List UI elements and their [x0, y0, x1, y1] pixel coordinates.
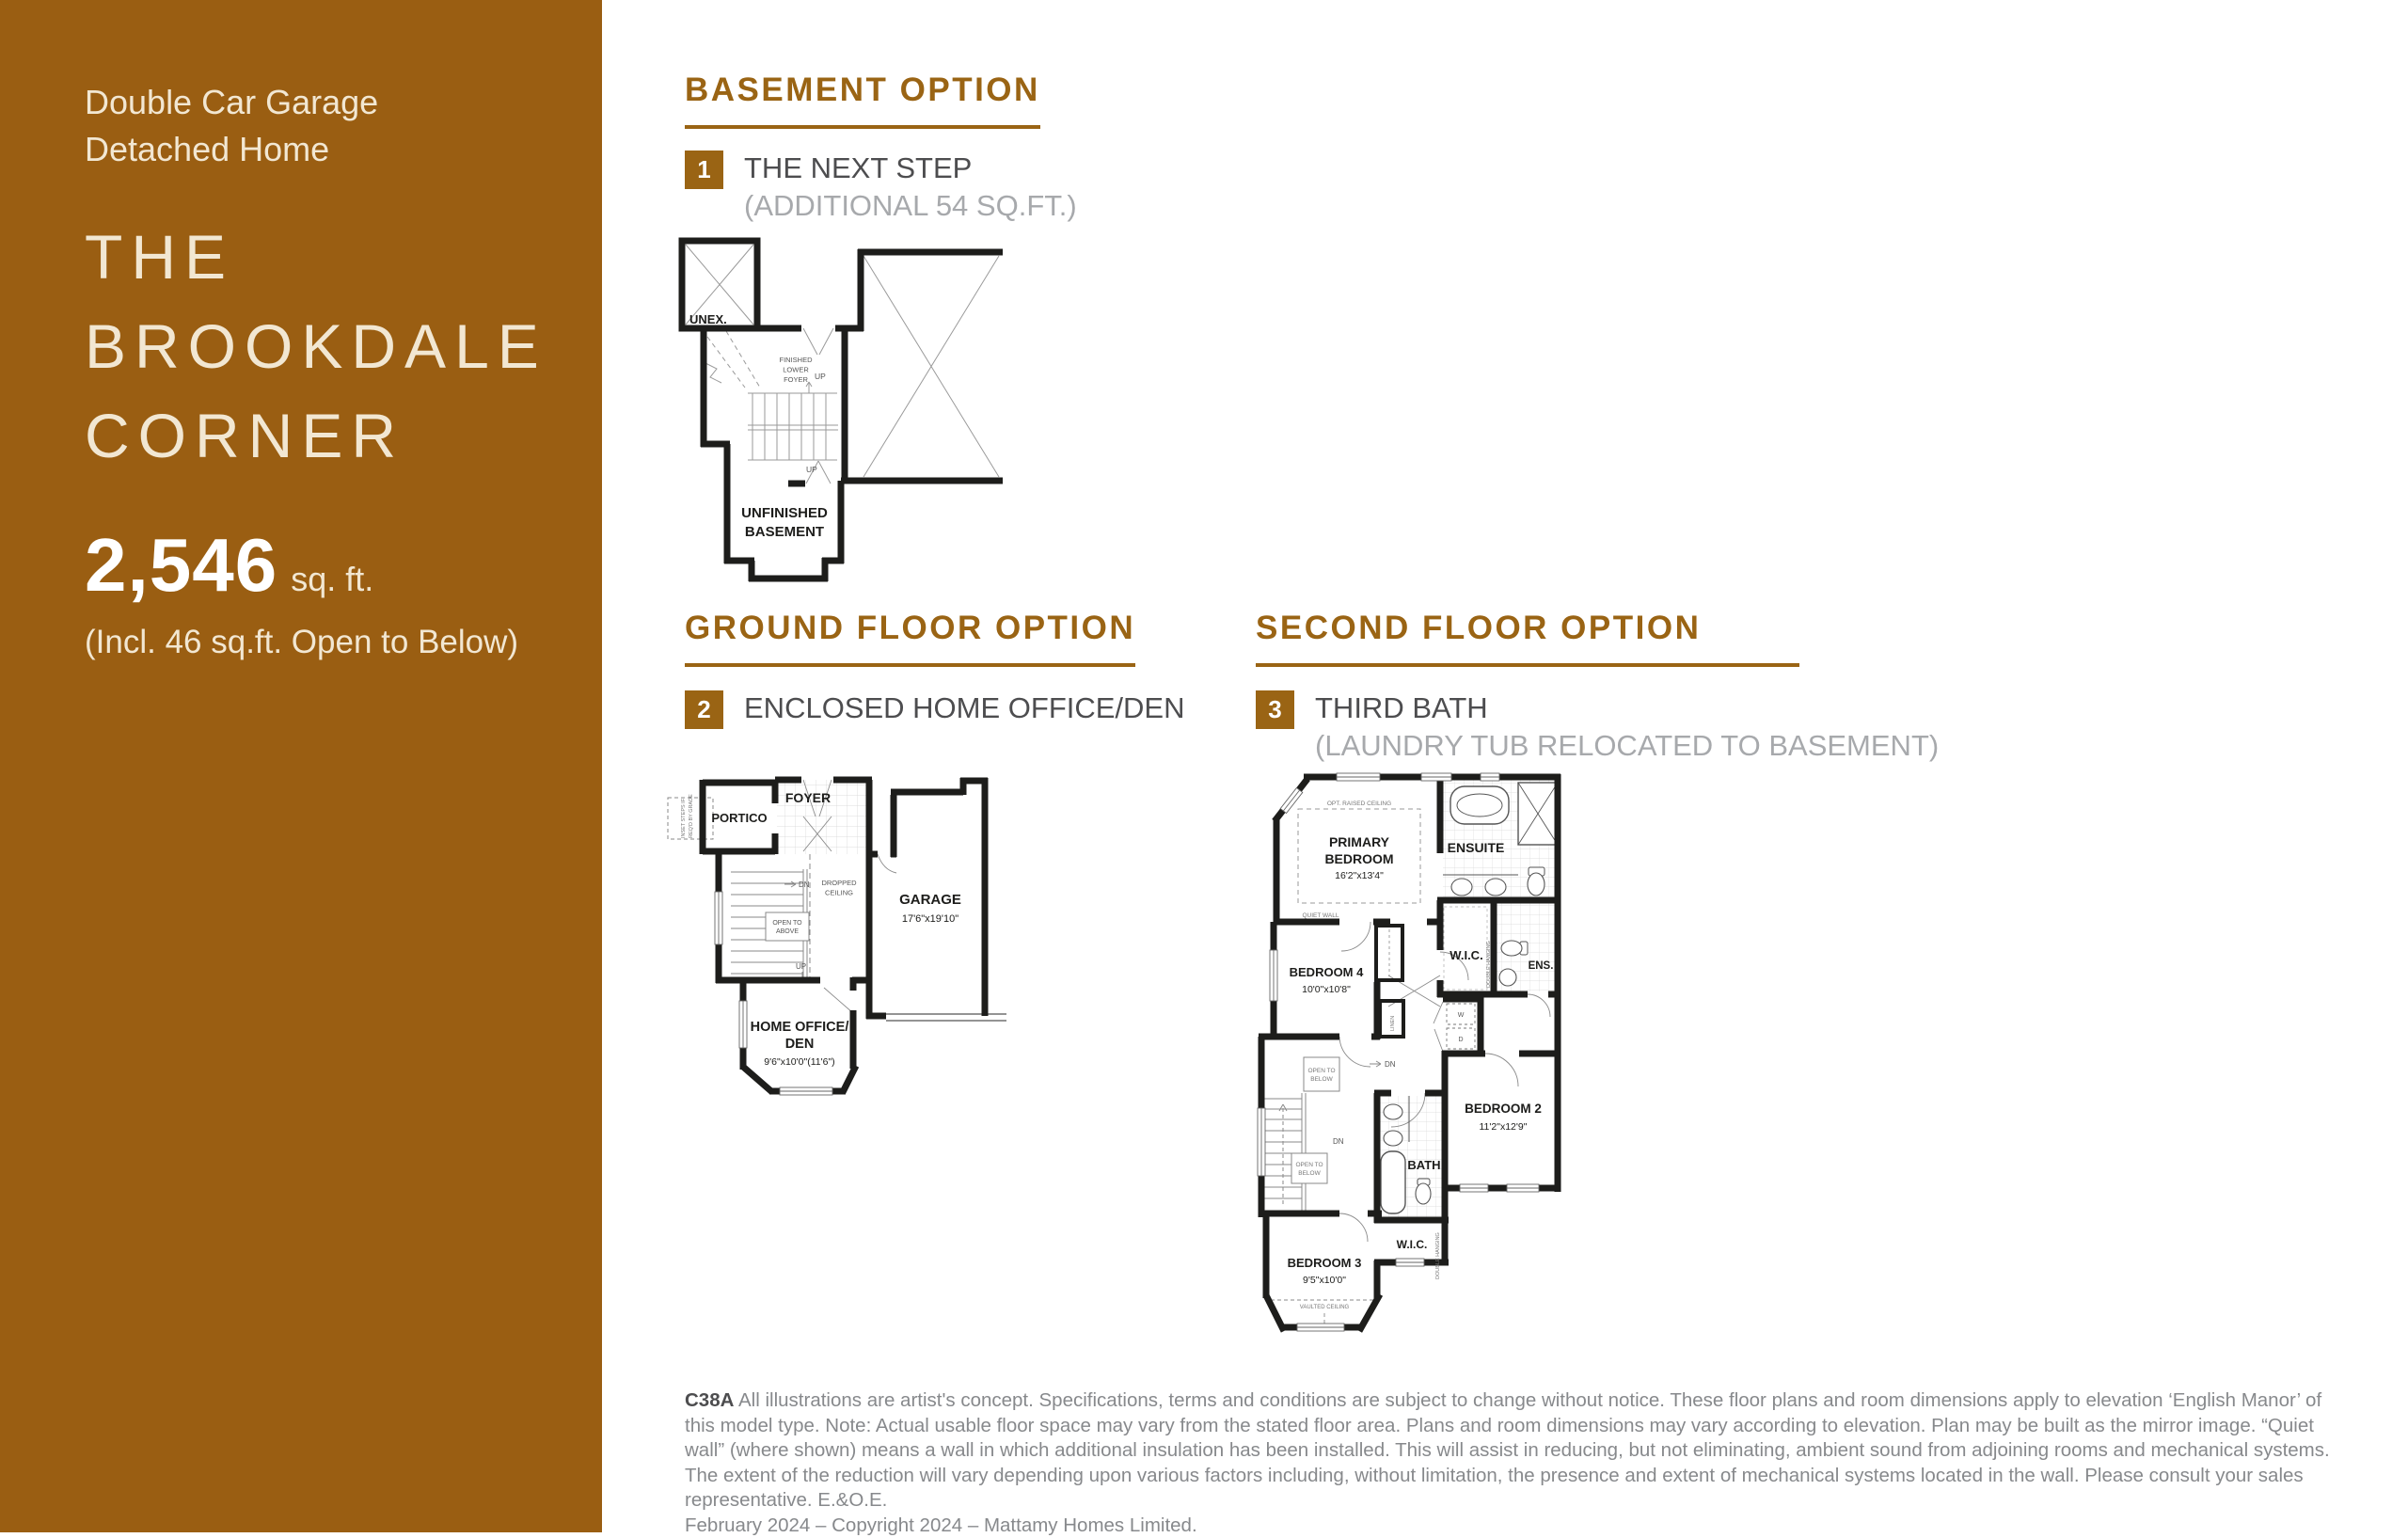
option-2-title: ENCLOSED HOME OFFICE/DEN: [744, 690, 1185, 725]
area-note: (Incl. 46 sq.ft. Open to Below): [85, 624, 564, 661]
note-double-hanging-2: DOUBLE HANGING: [1435, 1232, 1441, 1279]
legal-footer: C38A All illustrations are artist's conc…: [685, 1388, 2346, 1538]
section-heading-second: SECOND FLOOR OPTION: [1256, 610, 1799, 667]
label-dryer: D: [1458, 1037, 1463, 1043]
stair-label-up-1: UP: [815, 372, 826, 381]
stair-label-up-2: UP: [806, 465, 817, 474]
room-label-wic2: W.I.C.: [1397, 1238, 1428, 1251]
option-3-subtitle: (LAUNDRY TUB RELOCATED TO BASEMENT): [1315, 728, 1939, 763]
second-floor-plan: OPT. RAISED CEILING PRIMARY BEDROOM 16'2…: [1247, 764, 1588, 1356]
room-label-basement-2: BASEMENT: [745, 524, 824, 540]
note-open-above-1: OPEN TO: [772, 920, 802, 927]
option-1-subtitle: (ADDITIONAL 54 SQ.FT.): [744, 188, 1077, 223]
ground-floor-plan: PORTICO FOYER INSET STEPS IF REQ'D BY GR…: [660, 764, 1008, 1114]
room-label-bedroom2: BEDROOM 2: [1465, 1102, 1542, 1116]
note-open-above-2: ABOVE: [776, 928, 799, 935]
option-1-title: THE NEXT STEP: [744, 151, 1077, 185]
home-type-line1: Double Car Garage: [85, 79, 564, 126]
room-label-office-1: HOME OFFICE/: [751, 1020, 849, 1035]
note-dropped-1: DROPPED: [821, 879, 857, 887]
room-label-ens2: ENS.: [1529, 960, 1554, 972]
note-open-below-1a: OPEN TO: [1307, 1068, 1335, 1074]
room-label-primary-1: PRIMARY: [1329, 834, 1390, 849]
basement-floor-plan: UNEX. FINISHED LOWER FOYER UP UP UNFINIS…: [668, 231, 1006, 594]
basement-walls: [682, 241, 1003, 581]
disclaimer-text: All illustrations are artist's concept. …: [685, 1389, 2330, 1511]
room-label-wic1: W.I.C.: [1450, 948, 1482, 962]
note-dropped-2: CEILING: [825, 889, 853, 897]
stair-label-dn-1: DN: [1385, 1060, 1396, 1069]
label-washer: W: [1458, 1012, 1465, 1019]
option-1: 1 THE NEXT STEP (ADDITIONAL 54 SQ.FT.): [685, 151, 1077, 223]
room-label-primary-2: BEDROOM: [1324, 851, 1393, 866]
room-label-portico: PORTICO: [711, 811, 767, 825]
room-dim-bedroom4: 10'0"x10'8": [1302, 984, 1351, 995]
room-label-foyer: FOYER: [785, 790, 831, 805]
model-name-line2: BROOKDALE: [85, 302, 564, 391]
note-open-below-1b: BELOW: [1310, 1076, 1333, 1083]
section-heading-ground: GROUND FLOOR OPTION: [685, 610, 1135, 667]
room-label-garage: GARAGE: [899, 892, 961, 908]
room-label-foyer-3: FOYER: [784, 375, 808, 384]
note-open-below-2a: OPEN TO: [1295, 1162, 1323, 1168]
room-label-foyer-2: LOWER: [783, 366, 809, 374]
option-3-title: THIRD BATH: [1315, 690, 1939, 725]
option-3-badge: 3: [1256, 690, 1294, 729]
open-to-above-box: [766, 912, 809, 941]
room-dim-bedroom3: 9'5"x10'0": [1303, 1275, 1346, 1286]
room-label-bedroom3: BEDROOM 3: [1288, 1256, 1362, 1270]
plan-code: C38A: [685, 1389, 734, 1411]
option-2-subtitle: [744, 728, 1185, 729]
room-dim-primary: 16'2"x13'4": [1335, 870, 1384, 881]
section-heading-basement: BASEMENT OPTION: [685, 71, 1040, 129]
note-double-hanging-1: DOUBLE HANGING: [1486, 941, 1492, 988]
option-3: 3 THIRD BATH (LAUNDRY TUB RELOCATED TO B…: [1256, 690, 1939, 763]
model-name-line1: THE: [85, 213, 564, 302]
stair-label-dn-2: DN: [1333, 1137, 1344, 1146]
room-dim-garage: 17'6"x19'10": [902, 913, 958, 925]
room-label-basement-1: UNFINISHED: [741, 505, 828, 521]
note-inset-steps-1: INSET STEPS IF: [681, 798, 687, 838]
stair-label-up: UP: [796, 962, 806, 971]
note-quiet-wall: QUIET WALL: [1302, 912, 1339, 919]
room-label-ensuite: ENSUITE: [1448, 840, 1505, 855]
option-1-badge: 1: [685, 151, 723, 189]
home-type-line2: Detached Home: [85, 126, 564, 173]
note-opt-raised-ceiling: OPT. RAISED CEILING: [1327, 801, 1391, 807]
note-open-below-2b: BELOW: [1298, 1170, 1321, 1177]
room-label-bedroom4: BEDROOM 4: [1290, 965, 1365, 979]
brochure-page: Double Car Garage Detached Home THE BROO…: [0, 0, 2408, 1532]
room-label-unex: UNEX.: [689, 312, 727, 326]
room-label-bath: BATH: [1407, 1158, 1440, 1172]
room-dim-office: 9'6"x10'0"(11'6"): [764, 1056, 834, 1068]
copyright-line: February 2024 – Copyright 2024 – Mattamy…: [685, 1514, 2346, 1538]
model-name-line3: CORNER: [85, 391, 564, 481]
room-label-foyer-1: FINISHED: [779, 356, 813, 364]
option-2: 2 ENCLOSED HOME OFFICE/DEN: [685, 690, 1185, 729]
note-linen: LINEN: [1390, 1016, 1396, 1031]
note-vaulted-ceiling: VAULTED CEILING: [1300, 1305, 1350, 1310]
stair-label-dn: DN: [799, 880, 810, 889]
note-inset-steps-2: REQ'D BY GRADE: [689, 794, 694, 838]
sidebar: Double Car Garage Detached Home THE BROO…: [0, 0, 602, 1532]
square-footage: 2,546sq. ft.: [85, 522, 564, 609]
room-dim-bedroom2: 11'2"x12'9": [1480, 1121, 1528, 1133]
square-footage-value: 2,546: [85, 523, 277, 607]
model-name: THE BROOKDALE CORNER: [85, 213, 564, 481]
room-label-office-2: DEN: [785, 1037, 815, 1052]
option-2-badge: 2: [685, 690, 723, 729]
square-footage-unit: sq. ft.: [291, 560, 373, 598]
